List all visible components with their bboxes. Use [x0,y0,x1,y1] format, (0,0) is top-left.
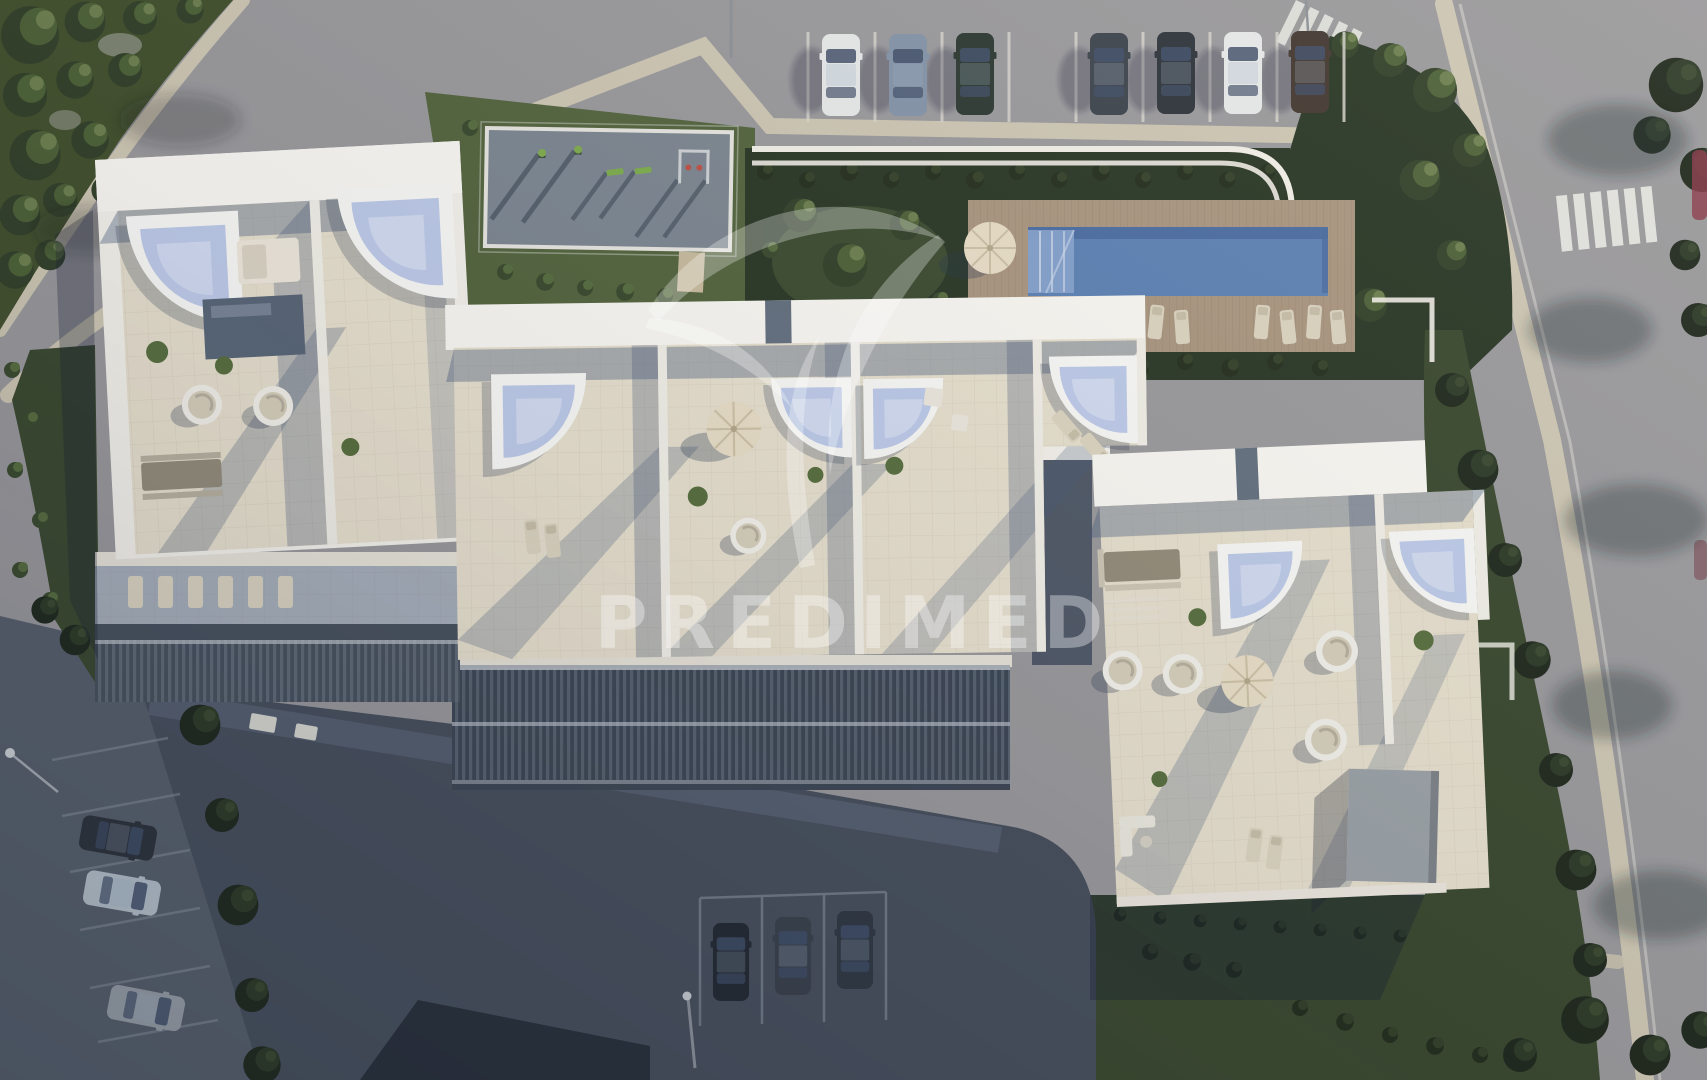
light-gradient-overlay [0,0,1707,1080]
watermark-text: PREDIMED [595,581,1116,665]
aerial-render-stage: PREDIMED [0,0,1707,1080]
aerial-render: PREDIMED [0,0,1707,1080]
